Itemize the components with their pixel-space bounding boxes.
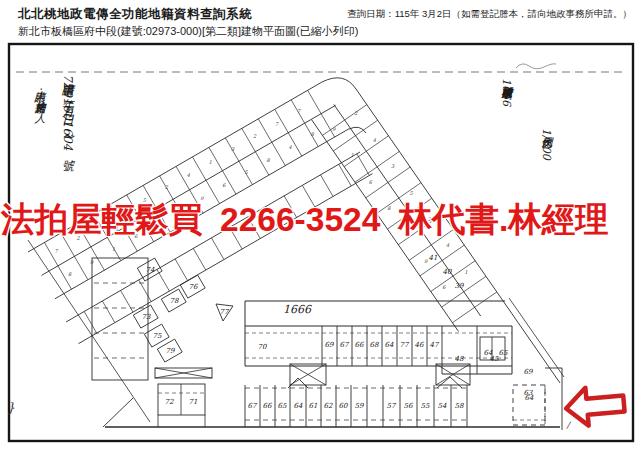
svg-text:61: 61 bbox=[309, 402, 318, 410]
svg-text:5: 5 bbox=[244, 169, 248, 175]
svg-text:5: 5 bbox=[409, 190, 413, 196]
svg-text:56: 56 bbox=[404, 402, 413, 410]
svg-text:4: 4 bbox=[446, 242, 450, 248]
svg-text:65: 65 bbox=[499, 349, 508, 357]
svg-text:7: 7 bbox=[297, 108, 301, 114]
svg-text:1: 1 bbox=[350, 152, 353, 158]
svg-text:3: 3 bbox=[391, 163, 395, 169]
svg-text:7: 7 bbox=[54, 248, 58, 254]
svg-text:40: 40 bbox=[443, 268, 452, 276]
svg-text:6: 6 bbox=[369, 179, 373, 185]
svg-text:75: 75 bbox=[153, 332, 162, 340]
svg-text:4: 4 bbox=[187, 172, 191, 178]
svg-text:76: 76 bbox=[189, 283, 198, 291]
svg-text:6: 6 bbox=[222, 182, 226, 188]
svg-text:69: 69 bbox=[325, 341, 334, 349]
svg-text:48: 48 bbox=[455, 355, 464, 363]
svg-text:69: 69 bbox=[524, 368, 533, 376]
svg-text:79: 79 bbox=[166, 347, 175, 355]
svg-text:57: 57 bbox=[387, 402, 397, 410]
handwritten-note-docnumber: 申請書72年9月1日601〜604號 bbox=[62, 74, 74, 150]
realtor-ad-overlay-text: 法拍屋輕鬆買 2266-3524 林代書.林經理 bbox=[1, 197, 609, 243]
svg-text:6: 6 bbox=[442, 284, 446, 290]
svg-text:7: 7 bbox=[275, 121, 279, 127]
svg-text:4: 4 bbox=[373, 137, 377, 143]
land-registry-floorplan-page: 北北桃地政電傳全功能地籍資料查詢系統 新北市板橋區府中段(建號:02973-00… bbox=[0, 0, 640, 454]
svg-text:39: 39 bbox=[455, 282, 464, 290]
svg-text:65: 65 bbox=[278, 402, 287, 410]
svg-text:9: 9 bbox=[424, 258, 428, 264]
svg-text:55: 55 bbox=[421, 402, 430, 410]
svg-text:2: 2 bbox=[253, 133, 257, 139]
svg-text:71: 71 bbox=[189, 398, 198, 406]
svg-text:64: 64 bbox=[525, 394, 534, 402]
svg-text:46: 46 bbox=[415, 341, 424, 349]
handwritten-note-section: 板橋市府中段建號1666 bbox=[501, 78, 512, 106]
svg-text:3: 3 bbox=[231, 146, 235, 152]
svg-text:68: 68 bbox=[370, 341, 379, 349]
svg-text:77: 77 bbox=[400, 341, 410, 349]
svg-text:70: 70 bbox=[258, 343, 267, 351]
svg-text:}: } bbox=[7, 400, 15, 415]
svg-text:66: 66 bbox=[263, 402, 272, 410]
svg-text:8: 8 bbox=[311, 131, 315, 137]
svg-text:58: 58 bbox=[455, 402, 464, 410]
svg-text:78: 78 bbox=[170, 297, 179, 305]
svg-text:59: 59 bbox=[355, 402, 364, 410]
svg-text:2: 2 bbox=[165, 184, 169, 190]
svg-text:1: 1 bbox=[209, 159, 212, 165]
svg-text:8: 8 bbox=[266, 157, 270, 163]
red-arrow-left-icon bbox=[564, 385, 625, 428]
svg-text:72: 72 bbox=[165, 398, 174, 406]
svg-text:77: 77 bbox=[220, 308, 230, 316]
svg-text:73: 73 bbox=[142, 313, 151, 321]
svg-text:8: 8 bbox=[68, 271, 72, 277]
svg-text:54: 54 bbox=[438, 402, 447, 410]
svg-text:4: 4 bbox=[289, 144, 293, 150]
handwritten-note-applicant: 申請人：持相房繁３人 bbox=[34, 82, 45, 104]
svg-text:/: / bbox=[565, 420, 571, 430]
svg-text:74: 74 bbox=[146, 266, 155, 274]
svg-text:1666: 1666 bbox=[283, 303, 312, 316]
svg-text:67: 67 bbox=[248, 402, 258, 410]
svg-text:1: 1 bbox=[464, 269, 467, 275]
svg-text:1: 1 bbox=[112, 246, 115, 252]
handwritten-note-scale: 比例尺1/600 bbox=[541, 128, 552, 160]
svg-text:60: 60 bbox=[339, 402, 348, 410]
svg-text:66: 66 bbox=[355, 341, 364, 349]
svg-text:62: 62 bbox=[324, 402, 333, 410]
svg-text:41: 41 bbox=[429, 254, 438, 262]
svg-text:64: 64 bbox=[294, 402, 303, 410]
svg-text:67: 67 bbox=[340, 341, 350, 349]
svg-text:64: 64 bbox=[385, 341, 394, 349]
svg-text:47: 47 bbox=[430, 341, 440, 349]
svg-text:45: 45 bbox=[490, 355, 499, 363]
